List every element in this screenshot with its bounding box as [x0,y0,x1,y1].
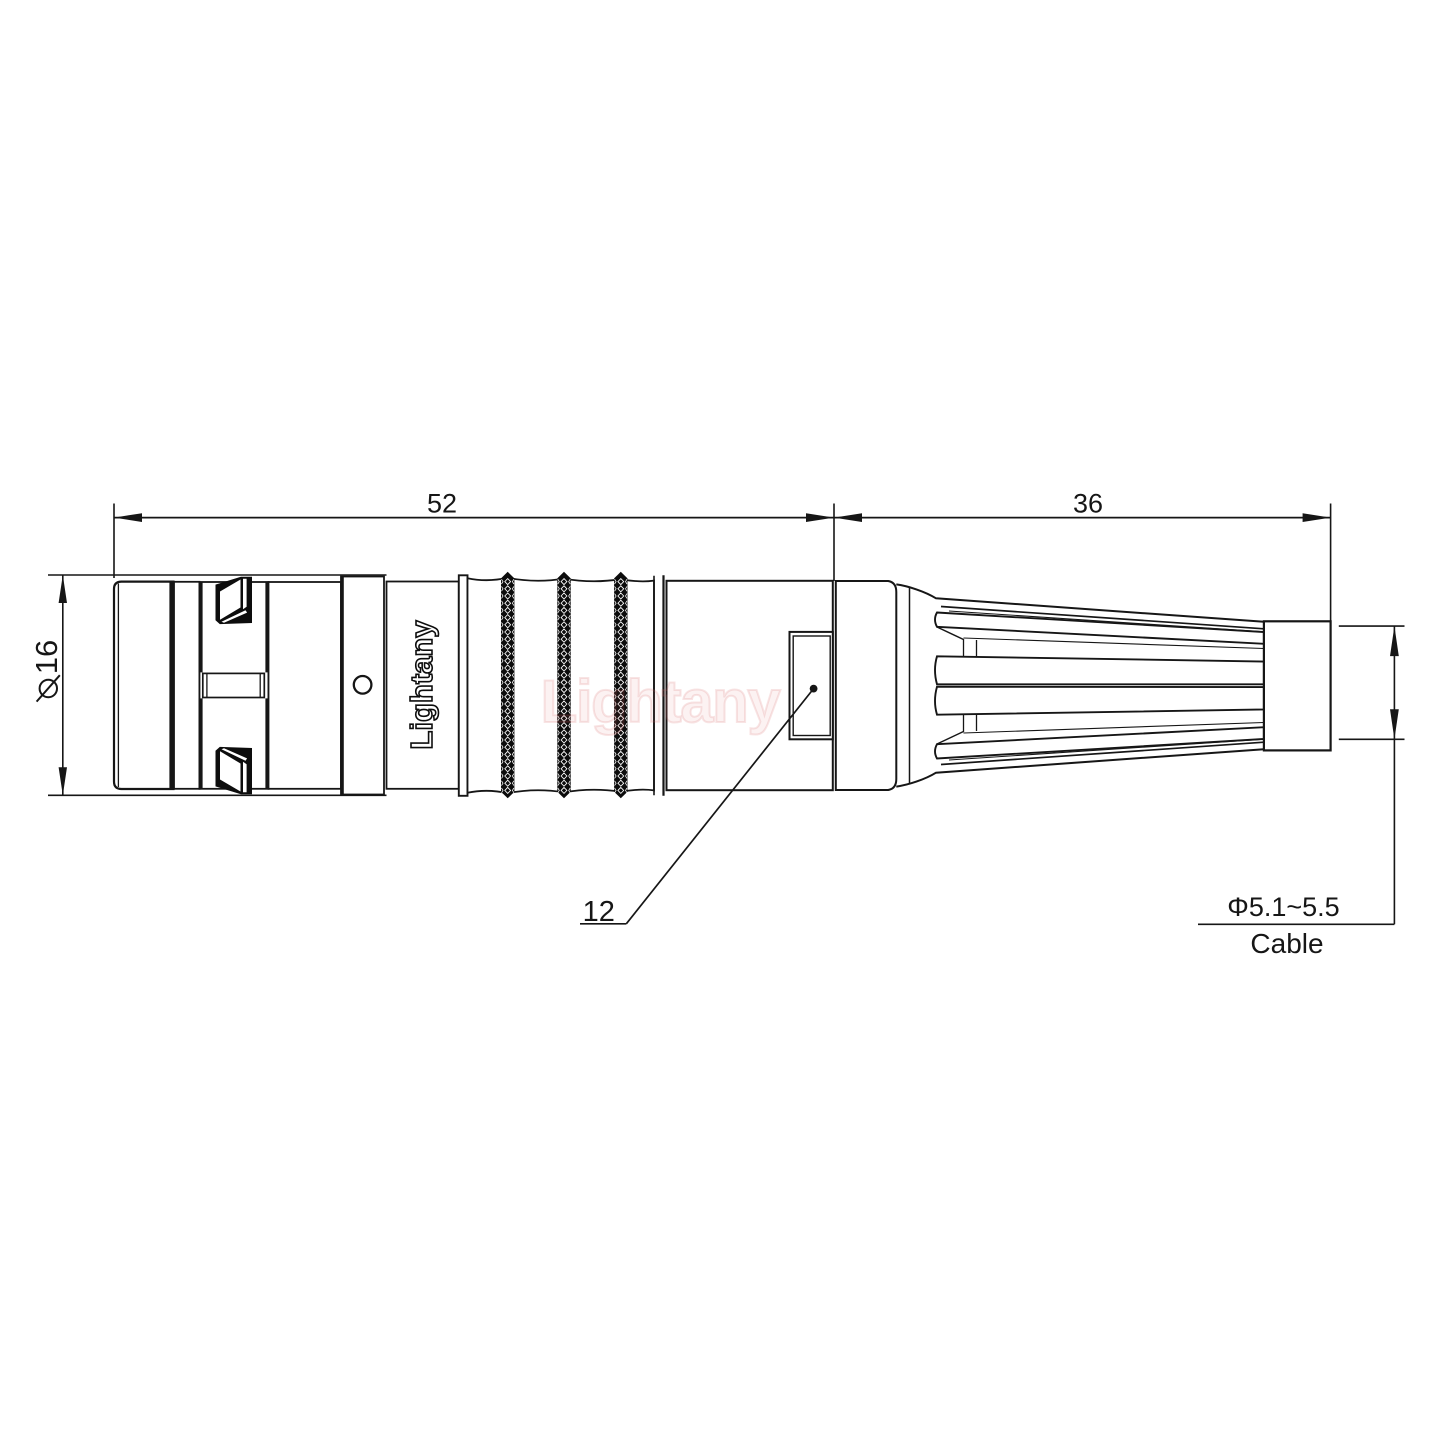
svg-text:52: 52 [427,489,457,519]
svg-text:Φ5.1~5.5: Φ5.1~5.5 [1227,892,1339,922]
svg-text:36: 36 [1073,489,1103,519]
svg-text:16: 16 [29,640,64,674]
svg-text:12: 12 [583,896,615,928]
svg-text:Lightany: Lightany [404,620,439,750]
svg-text:Cable: Cable [1250,928,1323,959]
svg-text:Lightany: Lightany [541,668,782,735]
